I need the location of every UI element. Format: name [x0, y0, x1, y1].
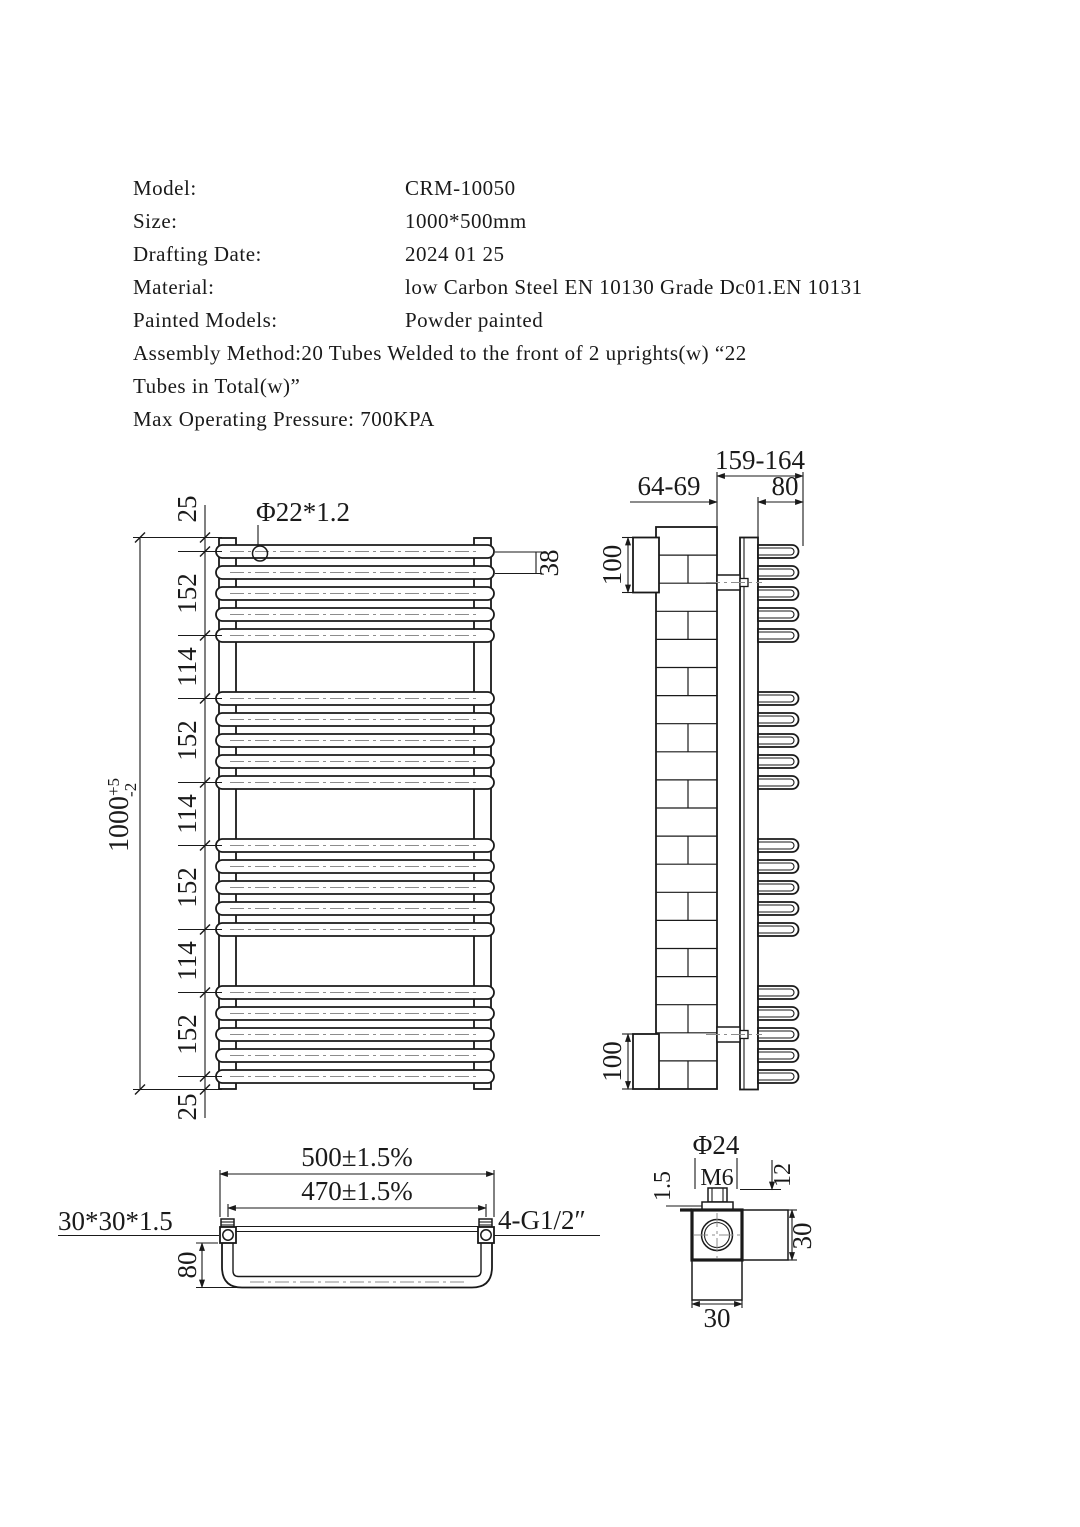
wall-bracket-top	[633, 538, 659, 593]
dim-64-69: 64-69	[638, 471, 701, 501]
dim-30-right: 30	[787, 1223, 817, 1250]
side-tube	[758, 1028, 799, 1041]
dim-500: 500±1.5%	[301, 1142, 413, 1172]
upright-side	[740, 538, 758, 1090]
side-tube	[758, 1007, 799, 1020]
side-tube	[758, 692, 799, 705]
thread-label: M6	[700, 1165, 733, 1191]
dim-80-plan: 80	[172, 1252, 202, 1279]
body-below	[692, 1260, 742, 1300]
side-tube	[758, 902, 799, 915]
side-tube	[758, 629, 799, 642]
dim-152-2: 152	[172, 720, 202, 761]
thread-hatch-right	[479, 1219, 492, 1227]
dim-80-side: 80	[772, 471, 799, 501]
dim-cap-dia: Φ24	[693, 1130, 740, 1160]
dim-100-bottom: 100	[597, 1041, 627, 1082]
upright-profile-label: 30*30*1.5	[58, 1206, 173, 1236]
dim-152-3: 152	[172, 867, 202, 908]
body-side	[742, 1210, 788, 1260]
dim-38: 38	[534, 550, 564, 577]
tube-spec-label: Φ22*1.2	[256, 497, 350, 527]
side-tube	[758, 839, 799, 852]
bow-tube-outer	[222, 1243, 492, 1288]
side-tube	[758, 587, 799, 600]
front-view: Φ22*1.2 25 152 114 152 114 152 114 152 2…	[104, 496, 564, 1121]
connections-label: 4-G1/2″	[498, 1205, 586, 1235]
bow-tube-inner	[233, 1243, 481, 1277]
stud	[708, 1188, 727, 1202]
side-tube	[758, 713, 799, 726]
dim-30-bottom: 30	[704, 1303, 731, 1333]
drawing-sheet: Model: CRM-10050 Size: 1000*500mm Drafti…	[0, 0, 1080, 1527]
dim-stud: 12	[770, 1163, 796, 1187]
side-view: 100 100 159-164 64-69 80	[597, 445, 805, 1090]
drawing-canvas: Φ22*1.2 25 152 114 152 114 152 114 152 2…	[0, 0, 1080, 1527]
dim-25-bottom: 25	[172, 1094, 202, 1121]
dim-152-1: 152	[172, 573, 202, 614]
dim-25-top: 25	[172, 496, 202, 523]
wall-bracket-bottom	[633, 1034, 659, 1089]
side-tube	[758, 1070, 799, 1083]
side-tube	[758, 881, 799, 894]
dim-114-3: 114	[172, 941, 202, 981]
dim-470: 470±1.5%	[301, 1176, 413, 1206]
plan-view: 500±1.5% 470±1.5% 80 30*30*1.5 4-G1/2″	[58, 1142, 600, 1288]
dim-152-4: 152	[172, 1014, 202, 1055]
dim-wall: 1.5	[650, 1171, 676, 1201]
dim-100-top: 100	[597, 545, 627, 586]
side-tube	[758, 608, 799, 621]
detail-view: Φ24 M6 1.5 12 30	[650, 1130, 817, 1333]
side-tube	[758, 566, 799, 579]
side-tube	[758, 545, 799, 558]
side-tube	[758, 986, 799, 999]
dim-114-1: 114	[172, 647, 202, 687]
side-tube	[758, 755, 799, 768]
dim-114-2: 114	[172, 794, 202, 834]
side-tube	[758, 734, 799, 747]
side-tube	[758, 923, 799, 936]
side-tube	[758, 776, 799, 789]
thread-hatch-left	[221, 1219, 234, 1227]
side-tube	[758, 1049, 799, 1062]
side-tube	[758, 860, 799, 873]
dim-overall-height: 1000+5-2	[104, 778, 140, 852]
